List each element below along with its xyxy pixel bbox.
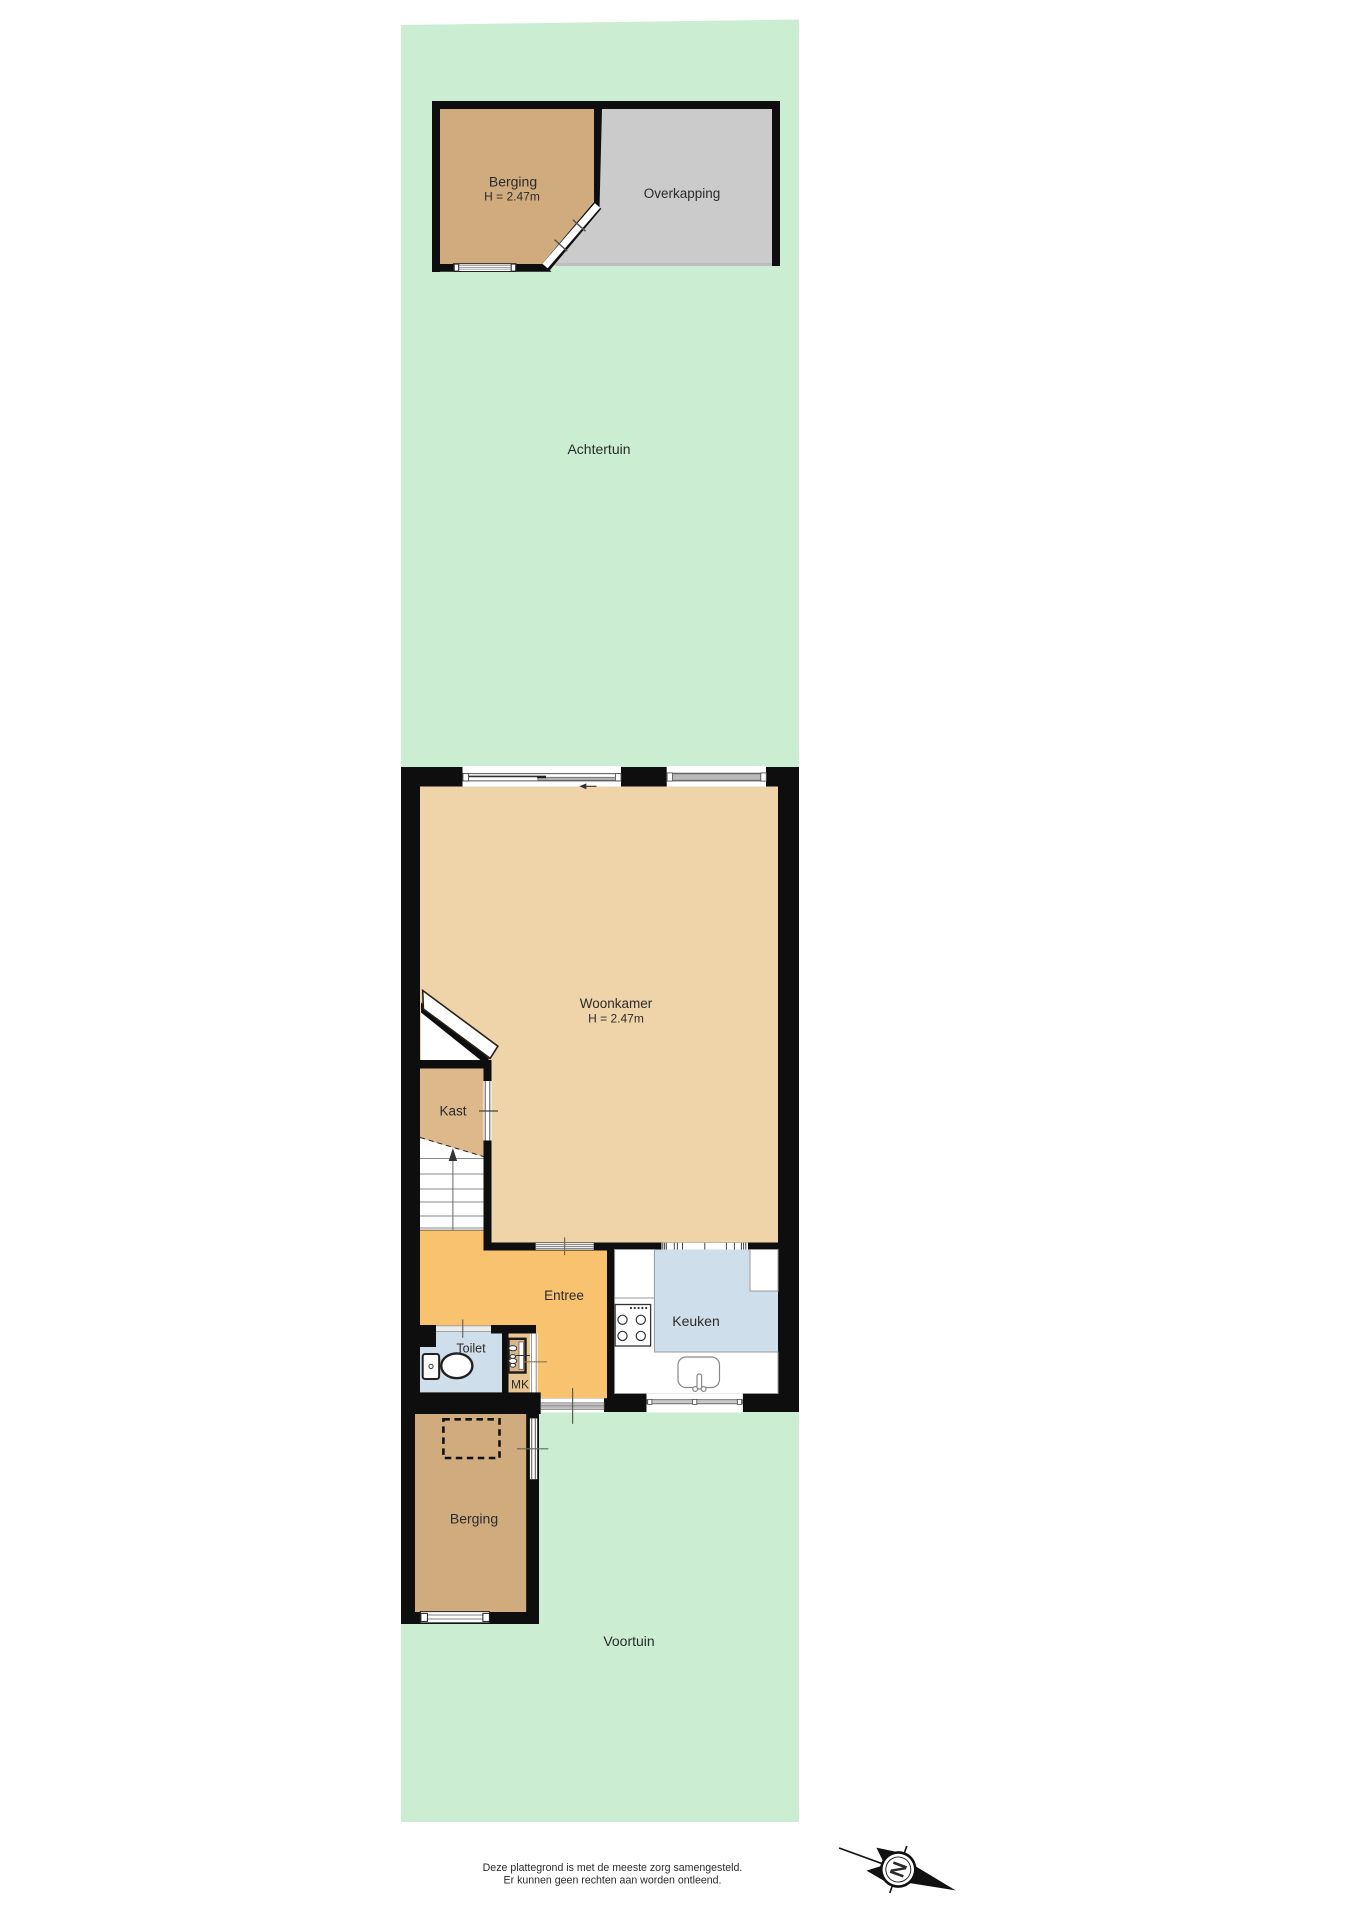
svg-text:Berging: Berging <box>450 1511 498 1527</box>
svg-text:Woonkamer: Woonkamer <box>580 996 653 1011</box>
svg-text:Berging: Berging <box>489 174 537 190</box>
svg-text:H = 2.47m: H = 2.47m <box>484 190 540 204</box>
svg-text:Voortuin: Voortuin <box>603 1633 654 1649</box>
svg-text:MK: MK <box>511 1378 529 1392</box>
svg-text:Toilet: Toilet <box>456 1342 486 1356</box>
svg-text:Deze plattegrond is met de mee: Deze plattegrond is met de meeste zorg s… <box>483 1862 743 1874</box>
svg-text:Keuken: Keuken <box>672 1313 719 1329</box>
svg-text:Entree: Entree <box>544 1288 584 1303</box>
svg-text:Er kunnen geen rechten aan wor: Er kunnen geen rechten aan worden ontlee… <box>504 1875 722 1887</box>
svg-text:Overkapping: Overkapping <box>644 186 721 201</box>
svg-text:H = 2.47m: H = 2.47m <box>588 1012 644 1026</box>
svg-text:Achtertuin: Achtertuin <box>567 441 630 457</box>
svg-text:Kast: Kast <box>439 1104 466 1119</box>
